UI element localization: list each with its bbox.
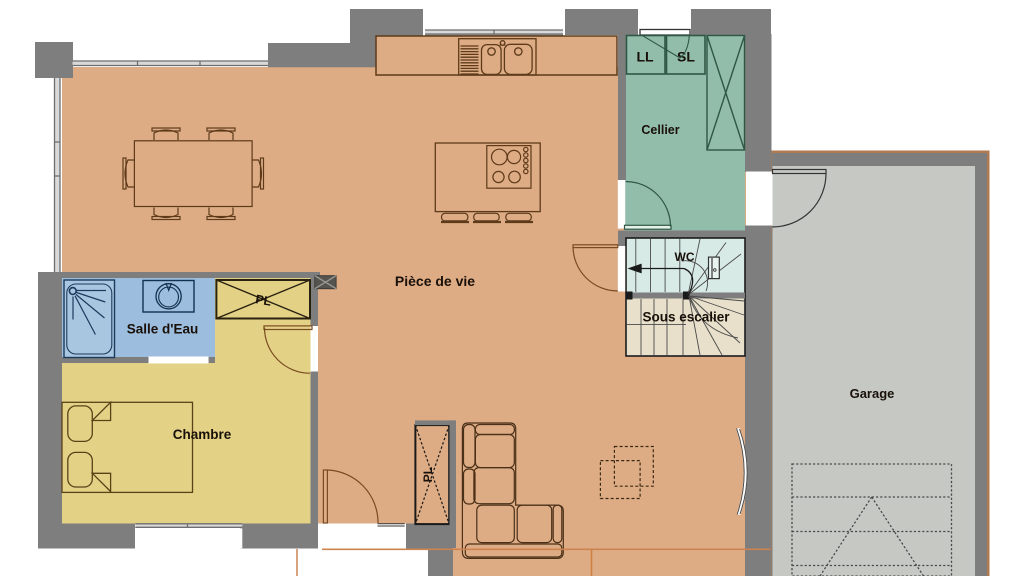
svg-text:Sous escalier: Sous escalier xyxy=(642,310,730,325)
svg-text:Garage: Garage xyxy=(850,386,895,401)
svg-text:PL: PL xyxy=(254,292,273,309)
svg-text:WC: WC xyxy=(675,250,695,264)
svg-text:Pièce de vie: Pièce de vie xyxy=(395,273,475,289)
svg-text:Cellier: Cellier xyxy=(641,123,679,137)
svg-text:LL: LL xyxy=(636,49,654,65)
svg-text:Salle d'Eau: Salle d'Eau xyxy=(127,322,199,337)
svg-text:PL: PL xyxy=(421,467,435,482)
svg-text:Chambre: Chambre xyxy=(173,427,232,442)
